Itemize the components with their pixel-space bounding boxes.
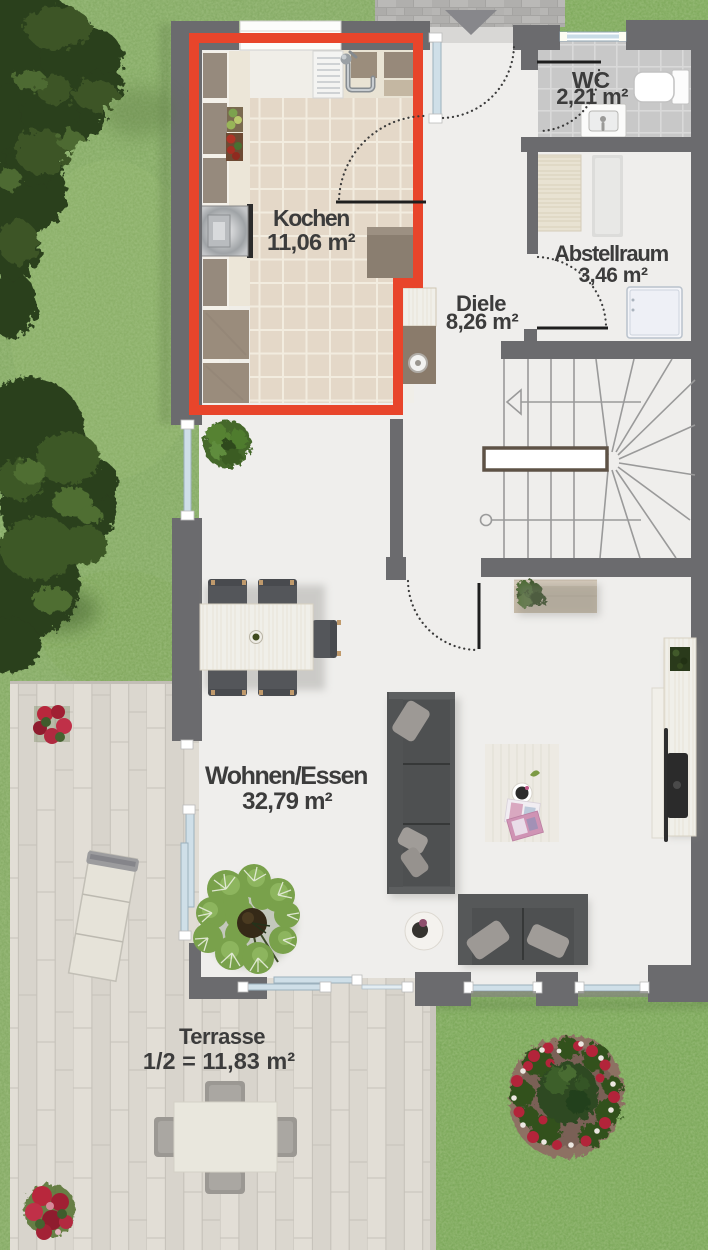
svg-text:3,46 m²: 3,46 m² (579, 264, 648, 287)
svg-text:8,26 m²: 8,26 m² (446, 309, 518, 334)
svg-text:Terrasse: Terrasse (179, 1024, 265, 1049)
svg-text:Kochen: Kochen (273, 205, 349, 231)
svg-text:2,21 m²: 2,21 m² (556, 84, 628, 109)
svg-text:11,06 m²: 11,06 m² (267, 229, 356, 255)
svg-text:Wohnen/Essen: Wohnen/Essen (205, 762, 367, 790)
svg-text:32,79 m²: 32,79 m² (242, 788, 332, 815)
svg-text:Abstellraum: Abstellraum (554, 241, 669, 266)
svg-text:1/2 = 11,83 m²: 1/2 = 11,83 m² (143, 1048, 295, 1074)
